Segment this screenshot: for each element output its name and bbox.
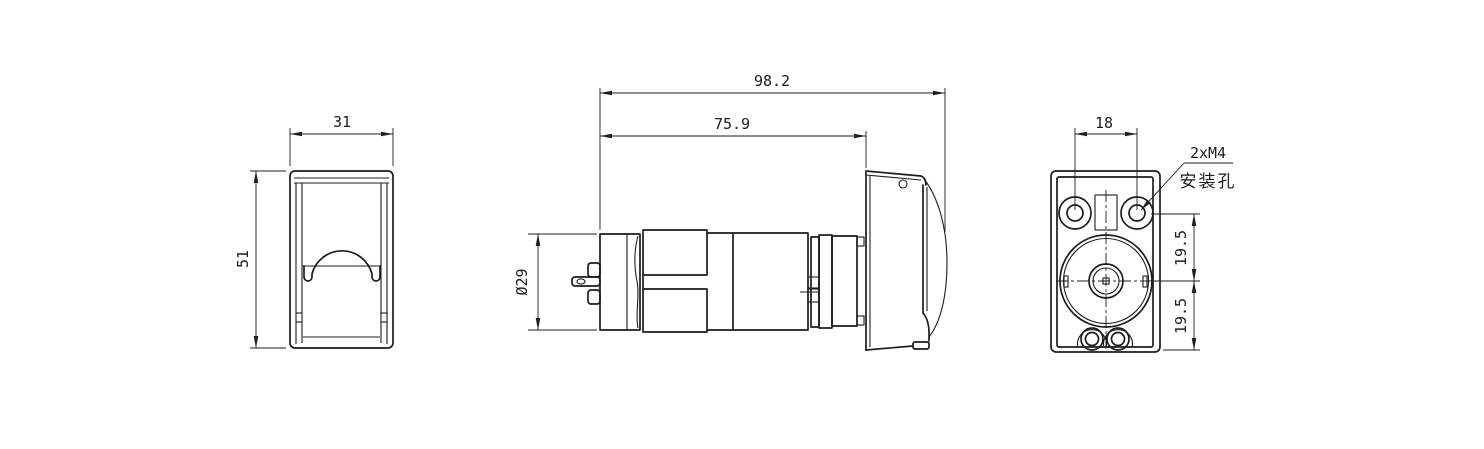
motor-terminals	[572, 263, 600, 304]
mounting-note-line1: 2xM4	[1190, 144, 1226, 162]
mounting-note-line2: 安装孔	[1180, 172, 1237, 192]
pump-head-side	[866, 171, 947, 350]
mounting-hole-note: 2xM4 安装孔	[1141, 144, 1237, 210]
front-view-outline	[290, 171, 393, 348]
hole-spacing-text: 18	[1095, 114, 1113, 132]
pump-drawing-canvas: 31 51	[0, 0, 1484, 449]
motor-body	[600, 230, 733, 332]
rear-view: 18 2xM4 安装孔 19.5 19.5	[1051, 114, 1237, 352]
engineering-drawing-sheet: 31 51	[0, 0, 1484, 449]
motor-diameter-text: Ø29	[513, 268, 531, 295]
front-width-dimension: 31	[290, 113, 393, 166]
tube-retainer	[302, 251, 381, 281]
lower-offset-dimension: 19.5	[1163, 281, 1200, 350]
overall-length-dimension: 98.2	[600, 72, 945, 232]
upper-offset-text: 19.5	[1172, 230, 1190, 266]
upper-offset-dimension: 19.5	[1148, 214, 1200, 281]
body-length-dimension: 75.9	[600, 115, 866, 168]
rotor-housing	[1056, 190, 1157, 352]
front-height-text: 51	[234, 250, 252, 268]
overall-length-text: 98.2	[754, 72, 790, 90]
front-height-dimension: 51	[234, 171, 286, 348]
side-view: 98.2 75.9 Ø29	[513, 72, 947, 350]
lower-offset-text: 19.5	[1172, 298, 1190, 334]
front-view: 31 51	[234, 113, 393, 348]
gearbox	[733, 233, 864, 330]
front-width-text: 31	[333, 113, 351, 131]
body-length-text: 75.9	[714, 115, 750, 133]
